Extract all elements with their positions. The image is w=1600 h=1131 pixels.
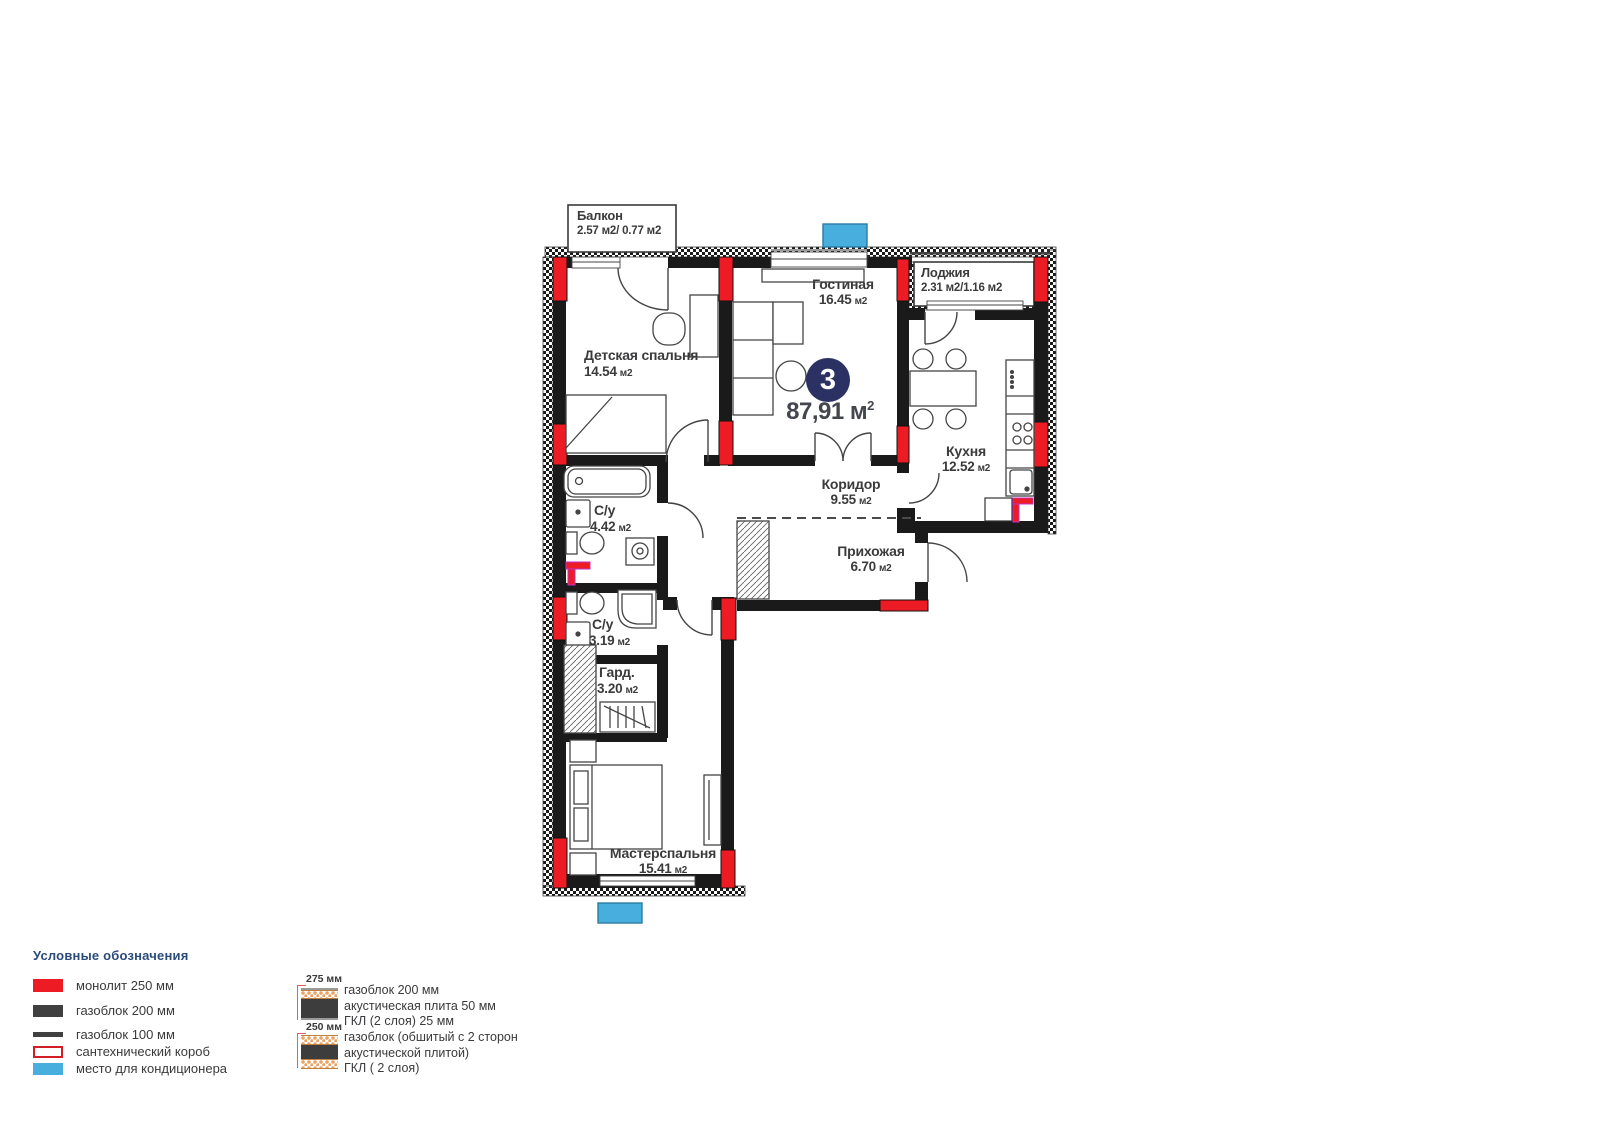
floor-plan-page: Балкон 2.57 м2/ 0.77 м2 Детская спальня …	[0, 0, 1600, 1131]
door-balcony	[618, 268, 668, 310]
floor-plan-drawing	[0, 0, 1600, 1131]
toilet-bowl	[580, 592, 604, 614]
sofa-arm	[773, 302, 803, 344]
plumbing-box-kitchen	[985, 498, 1012, 521]
wall-hatch-left	[543, 257, 553, 888]
dining-table	[910, 371, 976, 406]
chair	[946, 349, 966, 369]
door-master-hall	[677, 600, 712, 635]
nightstand	[570, 740, 596, 762]
room-label-bath1: С/у	[594, 502, 615, 518]
toilet-bowl	[580, 532, 604, 554]
legend-item-gas100: газоблок 100 мм	[33, 1027, 175, 1042]
balcony-window	[572, 257, 620, 268]
room-area-nursery: 14.54м2	[584, 364, 632, 380]
room-label-master: Мастерспальня 15.41м2	[590, 845, 736, 877]
chair	[946, 409, 966, 429]
stove-burner	[1013, 423, 1021, 431]
hall-closet	[737, 521, 769, 599]
room-label-balcony: Балкон	[577, 209, 623, 224]
ac-spot-bottom	[598, 903, 642, 923]
toilet-tank	[566, 532, 577, 554]
wall-type-275-swatch	[301, 988, 338, 1020]
room-area-wardrobe: 3.20м2	[597, 681, 638, 697]
door-kitchen	[909, 473, 939, 503]
pillow	[574, 808, 588, 841]
room-label-hall: Прихожая 6.70м2	[818, 543, 924, 575]
legend-item-gas200: газоблок 200 мм	[33, 1003, 175, 1018]
door-entrance	[928, 543, 967, 582]
legend-item-plumbing: сантехнический короб	[33, 1044, 210, 1059]
room-count-badge: 3	[806, 358, 850, 402]
master-wardrobe	[704, 775, 721, 845]
wall-type-250-text: газоблок (обшитый с 2 сторон акустическо…	[344, 1030, 518, 1077]
loggia-window	[927, 301, 1023, 310]
door-living-right	[843, 433, 871, 461]
door-bath1	[668, 503, 703, 538]
wall-type-275-text: газоблок 200 мм акустическая плита 50 мм…	[344, 983, 496, 1030]
monolith-swatch	[33, 979, 63, 992]
plumbing-swatch	[33, 1046, 63, 1058]
room-label-kitchen: Кухня 12.52м2	[916, 443, 1016, 475]
nursery-chair	[653, 313, 685, 345]
loggia-top-line	[910, 252, 1050, 255]
toilet-tank	[566, 592, 577, 614]
legend-title: Условные обозначения	[33, 948, 188, 963]
door-nursery	[666, 420, 708, 462]
room-label-nursery: Детская спальня	[584, 347, 698, 363]
room-label-bath2: С/у	[592, 616, 613, 632]
wall-hatch-right	[1048, 250, 1056, 534]
room-area-bath2: 3.19м2	[589, 633, 630, 649]
legend-item-ac: место для кондиционера	[33, 1061, 227, 1076]
room-area-loggia: 2.31 м2/1.16 м2	[921, 282, 1002, 295]
total-area: 87,91 м2	[770, 398, 890, 426]
stove-burner	[1024, 423, 1032, 431]
room-label-wardrobe: Гард.	[599, 664, 635, 680]
window-sill-line	[771, 249, 867, 251]
sofa-main	[733, 302, 773, 415]
room-area-balcony: 2.57 м2/ 0.77 м2	[577, 225, 661, 238]
nursery-bed	[566, 395, 666, 453]
coffee-table	[776, 361, 806, 391]
door-living-left	[815, 433, 843, 461]
gasblock100-swatch	[33, 1032, 63, 1037]
fridge-dots	[1011, 371, 1014, 374]
legend-item-monolith: монолит 250 мм	[33, 978, 174, 993]
ac-spot-top	[823, 224, 867, 247]
gasblock200-swatch	[33, 1005, 63, 1017]
room-label-loggia: Лоджия	[921, 266, 970, 281]
wall-type-250-dim: 250 мм	[306, 1021, 342, 1033]
pillow	[574, 771, 588, 804]
plumbing-box-bath	[566, 562, 590, 569]
room-label-living: Гостиная 16.45м2	[783, 276, 903, 308]
ac-swatch	[33, 1063, 63, 1075]
door-loggia	[925, 312, 957, 344]
wall-type-275-dim: 275 мм	[306, 973, 342, 985]
wall-type-250-swatch	[301, 1035, 338, 1069]
stove-burner	[1024, 436, 1032, 444]
wardrobe-shelves	[564, 645, 596, 733]
living-window	[771, 252, 867, 267]
chair	[913, 409, 933, 429]
shower	[618, 590, 656, 628]
room-area-bath1: 4.42м2	[590, 519, 631, 535]
chair	[913, 349, 933, 369]
bathtub-drain	[576, 478, 583, 485]
room-label-corridor: Коридор 9.55м2	[798, 476, 904, 508]
